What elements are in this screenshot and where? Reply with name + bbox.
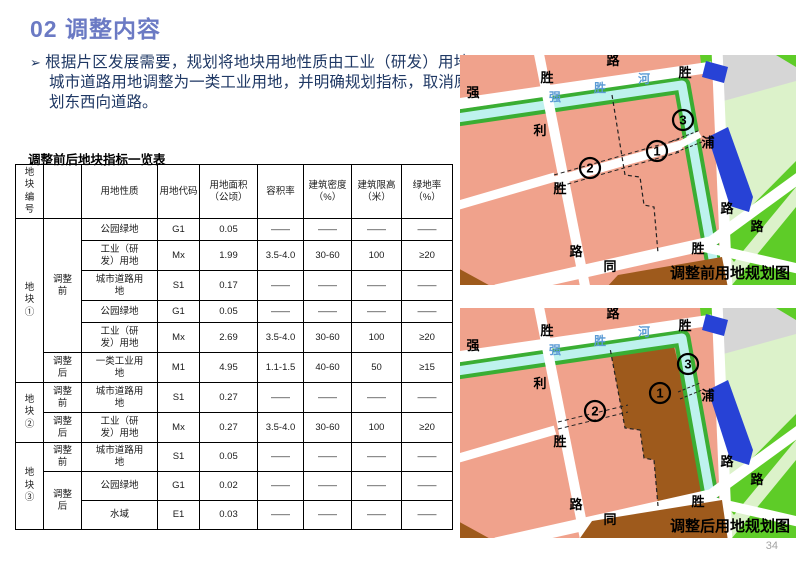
cell-block-id: 地块② bbox=[16, 383, 44, 443]
road-label: 胜 bbox=[678, 318, 691, 333]
river-label: 胜 bbox=[594, 333, 606, 348]
road-label: 路 bbox=[750, 472, 764, 487]
page-number: 34 bbox=[766, 540, 778, 552]
table-row: 地块③调整前城市道路用地S10.05———————— bbox=[16, 443, 453, 472]
cell-code: G1 bbox=[158, 219, 200, 241]
cell-code: S1 bbox=[158, 383, 200, 413]
cell-far: —— bbox=[258, 383, 304, 413]
river-label: 胜 bbox=[594, 80, 606, 95]
cell-code: Mx bbox=[158, 323, 200, 353]
cell-far: 1.1-1.5 bbox=[258, 353, 304, 383]
road-label: 浦 bbox=[701, 135, 714, 150]
marker-number-2: 2 bbox=[591, 404, 598, 419]
marker-number-3: 3 bbox=[684, 357, 691, 372]
cell-phase: 调整前 bbox=[44, 219, 82, 353]
road-label: 胜 bbox=[540, 70, 553, 85]
header-code: 用地代码 bbox=[158, 165, 200, 219]
cell-far: —— bbox=[258, 219, 304, 241]
table-row: 水域E10.03———————— bbox=[16, 501, 453, 530]
bullet-arrow-icon: ➢ bbox=[30, 55, 41, 70]
cell-greenrate: ≥20 bbox=[402, 323, 453, 353]
cell-far: 3.5-4.0 bbox=[258, 413, 304, 443]
cell-area: 0.05 bbox=[200, 301, 258, 323]
header-block-id: 地块编号 bbox=[16, 165, 44, 219]
marker-number-2: 2 bbox=[586, 161, 593, 176]
river-label: 强 bbox=[549, 90, 561, 104]
cell-area: 0.05 bbox=[200, 443, 258, 472]
road-label: 胜 bbox=[691, 241, 704, 256]
cell-greenrate: —— bbox=[402, 501, 453, 530]
header-landuse: 用地性质 bbox=[82, 165, 158, 219]
cell-density: 30-60 bbox=[304, 323, 352, 353]
cell-density: 40-60 bbox=[304, 353, 352, 383]
header-phase bbox=[44, 165, 82, 219]
cell-landuse: 公园绿地 bbox=[82, 301, 158, 323]
cell-block-id: 地块① bbox=[16, 219, 44, 383]
cell-phase: 调整前 bbox=[44, 383, 82, 413]
header-greenrate: 绿地率（%） bbox=[402, 165, 453, 219]
road-label: 利 bbox=[533, 123, 546, 138]
cell-height: 100 bbox=[352, 241, 402, 271]
road-label: 胜 bbox=[540, 323, 553, 338]
river-label: 河 bbox=[637, 71, 650, 86]
cell-height: —— bbox=[352, 219, 402, 241]
cell-area: 0.03 bbox=[200, 501, 258, 530]
map-after: 123强胜路胜利胜路同胜浦路路强胜河调整后用地规划图 bbox=[460, 308, 796, 538]
cell-greenrate: —— bbox=[402, 443, 453, 472]
cell-landuse: 公园绿地 bbox=[82, 219, 158, 241]
cell-area: 4.95 bbox=[200, 353, 258, 383]
cell-far: —— bbox=[258, 443, 304, 472]
table-row: 调整后工业（研发）用地Mx0.273.5-4.030-60100≥20 bbox=[16, 413, 453, 443]
map-before: 123强胜路胜利胜路同胜浦路路强胜河调整前用地规划图 bbox=[460, 55, 796, 285]
table-row: 工业（研发）用地Mx1.993.5-4.030-60100≥20 bbox=[16, 241, 453, 271]
cell-far: —— bbox=[258, 301, 304, 323]
cell-code: G1 bbox=[158, 472, 200, 501]
cell-phase: 调整前 bbox=[44, 443, 82, 472]
road-label: 路 bbox=[750, 219, 764, 234]
cell-height: —— bbox=[352, 383, 402, 413]
road-label: 强 bbox=[466, 85, 479, 100]
cell-density: 30-60 bbox=[304, 413, 352, 443]
table-row: 调整后公园绿地G10.02———————— bbox=[16, 472, 453, 501]
cell-landuse: 工业（研发）用地 bbox=[82, 413, 158, 443]
road-label: 路 bbox=[720, 201, 734, 216]
cell-greenrate: ≥20 bbox=[402, 413, 453, 443]
cell-landuse: 一类工业用地 bbox=[82, 353, 158, 383]
cell-density: —— bbox=[304, 443, 352, 472]
cell-far: —— bbox=[258, 501, 304, 530]
page-title: 02 调整内容 bbox=[30, 10, 161, 44]
cell-code: G1 bbox=[158, 301, 200, 323]
cell-density: —— bbox=[304, 501, 352, 530]
road-label: 同 bbox=[603, 259, 616, 274]
river-label: 河 bbox=[637, 324, 650, 339]
cell-height: —— bbox=[352, 501, 402, 530]
road-label: 胜 bbox=[553, 181, 566, 196]
cell-density: 30-60 bbox=[304, 241, 352, 271]
road-label: 浦 bbox=[701, 388, 714, 403]
table-row: 调整后一类工业用地M14.951.1-1.540-6050≥15 bbox=[16, 353, 453, 383]
cell-area: 0.17 bbox=[200, 271, 258, 301]
cell-far: 3.5-4.0 bbox=[258, 323, 304, 353]
cell-code: Mx bbox=[158, 241, 200, 271]
cell-density: —— bbox=[304, 219, 352, 241]
road-label: 同 bbox=[603, 512, 616, 527]
cell-far: —— bbox=[258, 472, 304, 501]
road-label: 路 bbox=[720, 454, 734, 469]
bullet-text: 根据片区发展需要，规划将地块用地性质由工业（研发）用地、城市道路用地调整为一类工… bbox=[45, 54, 485, 111]
table-row: 城市道路用地S10.17———————— bbox=[16, 271, 453, 301]
header-height: 建筑限高（米） bbox=[352, 165, 402, 219]
cell-greenrate: —— bbox=[402, 301, 453, 323]
cell-greenrate: —— bbox=[402, 219, 453, 241]
cell-landuse: 城市道路用地 bbox=[82, 383, 158, 413]
cell-density: —— bbox=[304, 301, 352, 323]
cell-phase: 调整后 bbox=[44, 413, 82, 443]
cell-landuse: 工业（研发）用地 bbox=[82, 241, 158, 271]
cell-density: —— bbox=[304, 271, 352, 301]
table-row: 地块②调整前城市道路用地S10.27———————— bbox=[16, 383, 453, 413]
cell-landuse: 城市道路用地 bbox=[82, 271, 158, 301]
cell-code: S1 bbox=[158, 271, 200, 301]
road-label: 强 bbox=[466, 338, 479, 353]
cell-code: Mx bbox=[158, 413, 200, 443]
table-row: 地块①调整前公园绿地G10.05———————— bbox=[16, 219, 453, 241]
cell-far: —— bbox=[258, 271, 304, 301]
cell-area: 1.99 bbox=[200, 241, 258, 271]
cell-height: 50 bbox=[352, 353, 402, 383]
table-header-row: 地块编号 用地性质 用地代码 用地面积（公顷） 容积率 建筑密度（%） 建筑限高… bbox=[16, 165, 453, 219]
table-row: 工业（研发）用地Mx2.693.5-4.030-60100≥20 bbox=[16, 323, 453, 353]
cell-area: 0.05 bbox=[200, 219, 258, 241]
marker-number-1: 1 bbox=[656, 386, 663, 401]
cell-density: —— bbox=[304, 472, 352, 501]
road-label: 路 bbox=[569, 497, 583, 512]
road-label: 路 bbox=[569, 244, 583, 259]
road-label: 路 bbox=[606, 308, 620, 321]
cell-code: S1 bbox=[158, 443, 200, 472]
road-label: 胜 bbox=[691, 494, 704, 509]
cell-area: 0.02 bbox=[200, 472, 258, 501]
cell-greenrate: ≥20 bbox=[402, 241, 453, 271]
marker-number-3: 3 bbox=[679, 113, 686, 128]
cell-landuse: 城市道路用地 bbox=[82, 443, 158, 472]
cell-far: 3.5-4.0 bbox=[258, 241, 304, 271]
table-row: 公园绿地G10.05———————— bbox=[16, 301, 453, 323]
cell-height: —— bbox=[352, 443, 402, 472]
cell-height: —— bbox=[352, 301, 402, 323]
river-label: 强 bbox=[549, 343, 561, 357]
cell-greenrate: —— bbox=[402, 472, 453, 501]
cell-greenrate: —— bbox=[402, 383, 453, 413]
cell-code: M1 bbox=[158, 353, 200, 383]
cell-area: 2.69 bbox=[200, 323, 258, 353]
cell-height: 100 bbox=[352, 323, 402, 353]
cell-block-id: 地块③ bbox=[16, 443, 44, 530]
cell-phase: 调整后 bbox=[44, 472, 82, 530]
cell-area: 0.27 bbox=[200, 413, 258, 443]
indicator-table: 地块编号 用地性质 用地代码 用地面积（公顷） 容积率 建筑密度（%） 建筑限高… bbox=[15, 164, 453, 530]
cell-height: —— bbox=[352, 271, 402, 301]
road-label: 胜 bbox=[553, 434, 566, 449]
road-label: 胜 bbox=[678, 65, 691, 80]
cell-code: E1 bbox=[158, 501, 200, 530]
cell-area: 0.27 bbox=[200, 383, 258, 413]
road-label: 利 bbox=[533, 376, 546, 391]
road-label: 路 bbox=[606, 55, 620, 68]
cell-phase: 调整后 bbox=[44, 353, 82, 383]
header-far: 容积率 bbox=[258, 165, 304, 219]
cell-height: —— bbox=[352, 472, 402, 501]
cell-greenrate: —— bbox=[402, 271, 453, 301]
map-caption: 调整后用地规划图 bbox=[670, 517, 790, 535]
cell-landuse: 工业（研发）用地 bbox=[82, 323, 158, 353]
cell-height: 100 bbox=[352, 413, 402, 443]
header-area: 用地面积（公顷） bbox=[200, 165, 258, 219]
map-caption: 调整前用地规划图 bbox=[670, 264, 790, 282]
cell-density: —— bbox=[304, 383, 352, 413]
cell-landuse: 水域 bbox=[82, 501, 158, 530]
bullet-paragraph: ➢根据片区发展需要，规划将地块用地性质由工业（研发）用地、城市道路用地调整为一类… bbox=[30, 53, 485, 112]
cell-landuse: 公园绿地 bbox=[82, 472, 158, 501]
marker-number-1: 1 bbox=[653, 144, 660, 159]
cell-greenrate: ≥15 bbox=[402, 353, 453, 383]
header-density: 建筑密度（%） bbox=[304, 165, 352, 219]
